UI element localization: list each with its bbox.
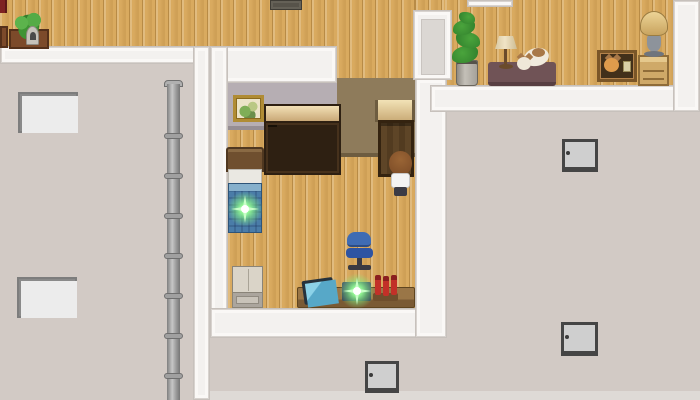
floor-lamp-foot [644, 51, 664, 57]
lamp-base [499, 64, 513, 69]
window-2pane-bottom [365, 361, 399, 393]
wall-trim-room-top [210, 46, 337, 83]
glowing-item-on-bed[interactable] [227, 191, 263, 227]
pipe-joint [164, 213, 183, 219]
wall-trim-right-edge [673, 0, 700, 112]
game-scene [0, 0, 700, 400]
crate-item [623, 61, 631, 72]
sparkle-core [241, 205, 249, 213]
nightstand-drawer-line [643, 78, 664, 80]
window-latch [369, 373, 373, 377]
lamp-stem [504, 49, 507, 64]
glowing-item-on-desk[interactable] [339, 273, 375, 309]
bookshelf [264, 104, 341, 175]
wall-trim-room-right [415, 78, 447, 338]
door-lintel [375, 100, 415, 122]
vial [375, 275, 381, 295]
nightstand-drawer-line [643, 70, 664, 72]
lamp-shade [495, 36, 517, 49]
refrigerator [232, 266, 263, 308]
roof-light-band [210, 391, 700, 400]
fridge-door-split [248, 269, 249, 291]
window-latch [565, 335, 569, 339]
vial [391, 275, 397, 295]
window-4pane-upper [18, 92, 78, 133]
picture-art [237, 99, 260, 118]
floor-lamp-base [647, 35, 661, 52]
red-object [0, 0, 7, 13]
planter-partial [0, 26, 8, 48]
sparkle-core [353, 287, 361, 295]
wall-trim-left-vertical [193, 46, 210, 400]
pipe-joint [164, 293, 183, 299]
pipe-joint [164, 373, 183, 379]
floor-lamp-shade [640, 11, 668, 36]
window-4pane-lower [17, 277, 77, 318]
pipe-joint [164, 133, 183, 139]
chair-base [348, 265, 371, 270]
wall-picture [233, 95, 264, 122]
chair-back [347, 232, 371, 247]
floor-corridor [337, 0, 415, 82]
character-legs [394, 187, 407, 196]
potted-plant [450, 12, 482, 86]
crate-cat-head [604, 58, 619, 72]
bed-pillow [228, 169, 262, 184]
pipe-joint [164, 253, 183, 259]
window-2pane-upper [562, 139, 598, 172]
bookshelf-row [268, 125, 276, 127]
wall-trim-sliver-top [467, 0, 513, 7]
tv-screen [305, 280, 339, 308]
chair-post [357, 258, 362, 265]
crate-with-cat [597, 50, 637, 82]
character-hair [389, 151, 412, 175]
cat-head [517, 57, 531, 70]
wall-trim-right-room-bottom [430, 85, 700, 112]
vial [383, 276, 389, 296]
drain-pipe [164, 80, 183, 400]
cat-patch [532, 48, 545, 57]
red-vials [373, 275, 398, 301]
window-latch [566, 151, 570, 155]
floor-lamp [640, 11, 668, 58]
wall-trim-room-left [210, 46, 228, 338]
pipe-joint [164, 333, 183, 339]
wall-trim-room-bottom [210, 308, 447, 338]
character-shirt [391, 173, 410, 188]
pipe-tube [167, 84, 180, 400]
fridge-drawer [236, 296, 259, 304]
pipe-joint [164, 173, 183, 179]
cat-on-table [516, 42, 550, 76]
plant-pot [456, 60, 478, 86]
table-lamp [494, 36, 518, 70]
chair-seat [346, 248, 373, 258]
doormat[interactable] [270, 0, 302, 10]
nightstand [638, 55, 669, 86]
office-chair [346, 232, 373, 273]
wall-trim-block-panel [421, 19, 445, 75]
television [301, 277, 335, 305]
wall-trim-block [413, 10, 452, 80]
plant-leaves [459, 12, 475, 24]
player-character[interactable] [388, 151, 413, 198]
bookshelf-top [266, 106, 339, 123]
window-2pane-lower [561, 322, 598, 356]
stone-ornament [26, 26, 39, 45]
bookshelf-shelves [268, 125, 337, 171]
planter-with-bush [9, 12, 49, 49]
